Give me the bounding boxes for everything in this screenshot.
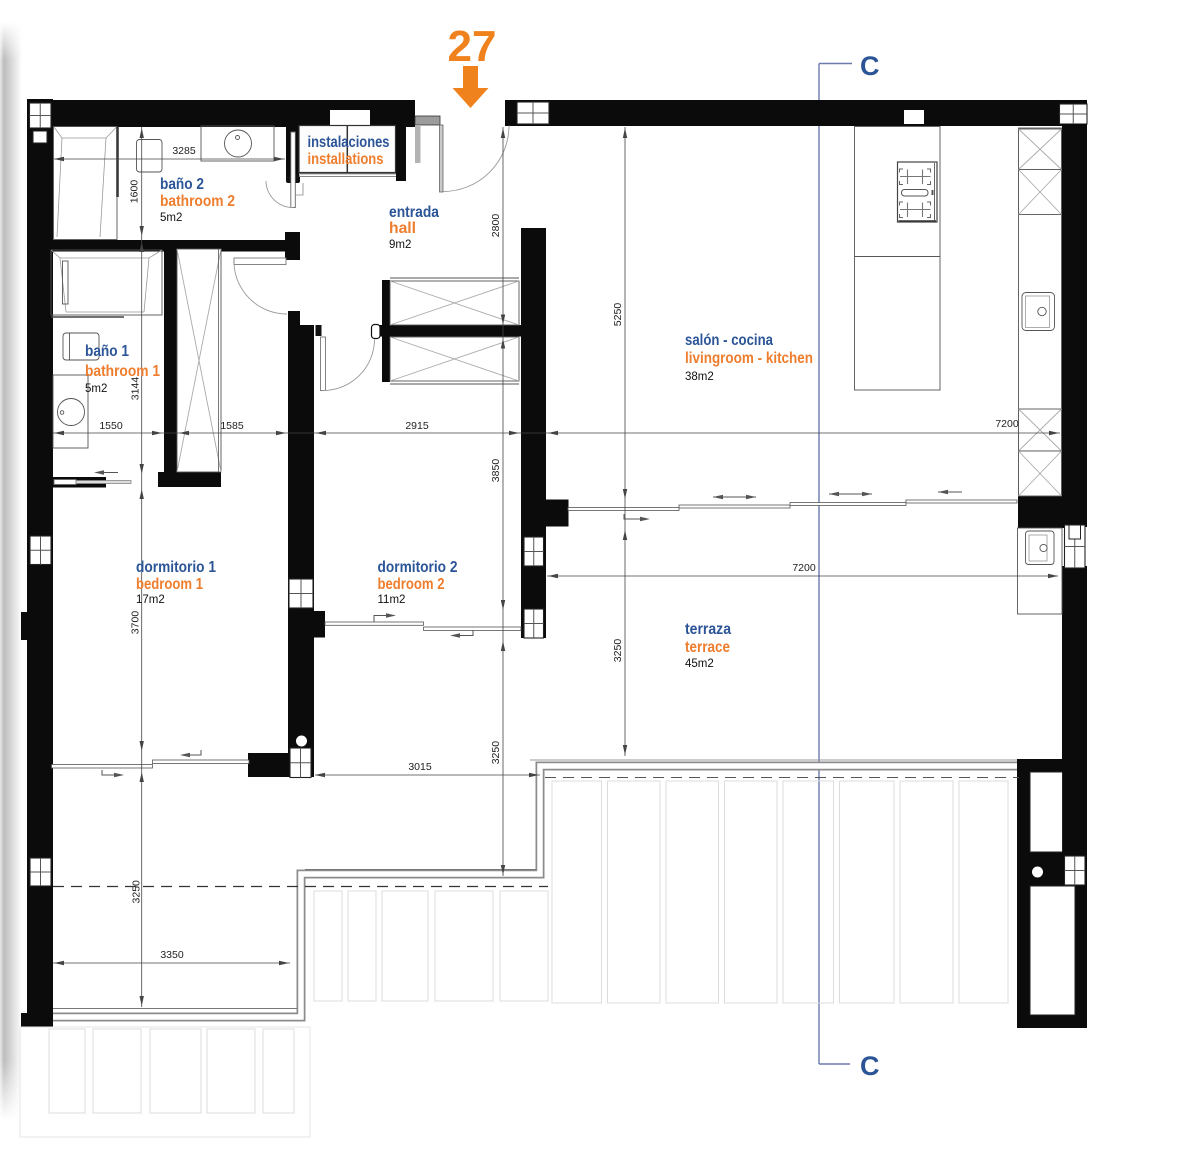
svg-text:11m2: 11m2 xyxy=(378,594,406,606)
svg-text:baño 1: baño 1 xyxy=(85,343,129,360)
svg-text:27: 27 xyxy=(448,22,497,71)
svg-text:5m2: 5m2 xyxy=(160,212,182,224)
svg-text:dormitorio 1: dormitorio 1 xyxy=(136,559,216,576)
svg-text:bathroom 2: bathroom 2 xyxy=(160,193,235,210)
svg-text:baño 2: baño 2 xyxy=(160,176,204,193)
svg-text:1600: 1600 xyxy=(129,180,141,204)
svg-text:salón - cocina: salón - cocina xyxy=(685,332,773,349)
svg-text:livingroom - kitchen: livingroom - kitchen xyxy=(685,350,813,367)
svg-text:hall: hall xyxy=(389,220,416,237)
svg-text:3144: 3144 xyxy=(129,377,141,401)
svg-text:entrada: entrada xyxy=(389,204,439,221)
svg-text:3350: 3350 xyxy=(160,949,184,961)
svg-text:installations: installations xyxy=(308,151,384,168)
svg-text:3285: 3285 xyxy=(172,145,196,157)
svg-text:terraza: terraza xyxy=(685,621,731,638)
svg-text:3250: 3250 xyxy=(490,741,502,765)
svg-text:bedroom 1: bedroom 1 xyxy=(136,576,203,593)
svg-text:7200: 7200 xyxy=(995,418,1019,430)
svg-text:7200: 7200 xyxy=(792,562,816,574)
svg-text:instalaciones: instalaciones xyxy=(308,134,390,151)
svg-text:45m2: 45m2 xyxy=(685,658,714,670)
svg-text:2915: 2915 xyxy=(405,420,429,432)
svg-text:1585: 1585 xyxy=(220,420,244,432)
svg-text:1550: 1550 xyxy=(99,420,123,432)
svg-text:3700: 3700 xyxy=(130,611,142,635)
svg-text:terrace: terrace xyxy=(685,639,730,656)
svg-text:38m2: 38m2 xyxy=(685,371,714,383)
svg-text:5250: 5250 xyxy=(612,303,624,327)
svg-text:3015: 3015 xyxy=(408,761,432,773)
svg-text:dormitorio 2: dormitorio 2 xyxy=(378,559,458,576)
svg-text:C: C xyxy=(860,1051,880,1081)
svg-text:3850: 3850 xyxy=(490,459,502,483)
svg-text:bathroom 1: bathroom 1 xyxy=(85,363,160,380)
svg-text:bedroom 2: bedroom 2 xyxy=(378,576,445,593)
svg-text:3250: 3250 xyxy=(612,639,624,663)
svg-text:3250: 3250 xyxy=(131,880,143,904)
svg-text:C: C xyxy=(860,51,880,81)
svg-text:17m2: 17m2 xyxy=(136,594,165,606)
svg-text:9m2: 9m2 xyxy=(389,239,411,251)
svg-text:2800: 2800 xyxy=(490,214,502,238)
svg-text:5m2: 5m2 xyxy=(85,383,107,395)
